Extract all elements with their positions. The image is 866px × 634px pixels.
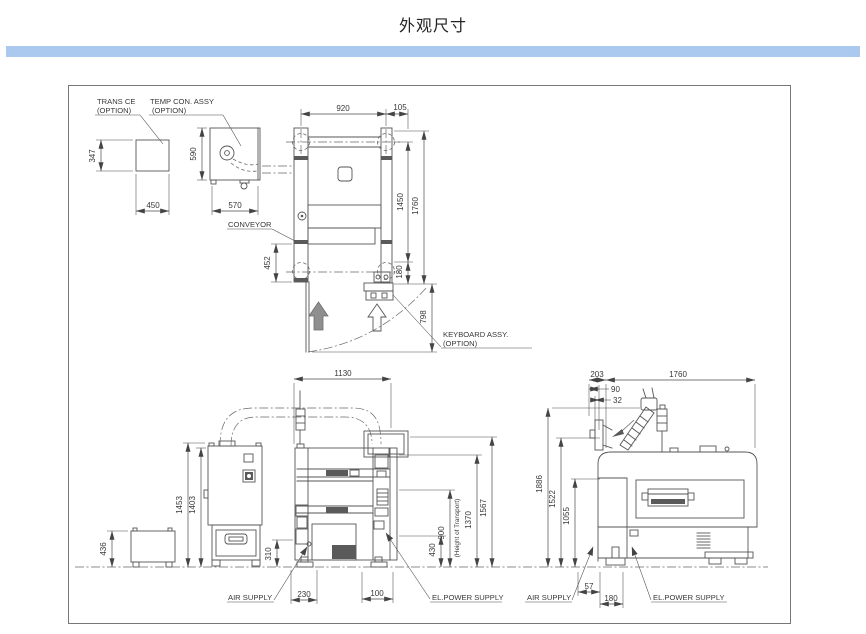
air-supply-label-front: AIR SUPPLY — [228, 593, 272, 602]
small-option-box: 436 — [99, 528, 175, 567]
dim-front-310: 310 — [264, 547, 273, 561]
side-view: 203 1760 90 32 1886 1522 1055 57 — [525, 370, 757, 608]
keyboard-assy-plan — [364, 272, 393, 300]
duct-outer — [220, 408, 381, 446]
dim-front-430: 430 — [428, 543, 437, 557]
dim-front-1370: 1370 — [464, 511, 473, 529]
flow-arrow-filled — [309, 302, 328, 330]
temp-con-label-line2: (OPTION) — [152, 106, 187, 115]
trans-ce-label-line2: (OPTION) — [97, 106, 132, 115]
dim-front-1567: 1567 — [479, 499, 488, 517]
keyboard-label-line2: (OPTION) — [443, 339, 478, 348]
dim-plan-452: 452 — [263, 256, 272, 270]
front-view: 436 1453 — [99, 369, 504, 604]
dim-side-32: 32 — [613, 396, 622, 405]
vent-grille-side — [697, 533, 710, 548]
monitor-front — [364, 431, 408, 457]
dim-side-1886: 1886 — [535, 475, 544, 493]
dim-trans-347: 347 — [88, 149, 97, 163]
dim-side-1055: 1055 — [562, 507, 571, 525]
dim-plan-920: 920 — [336, 104, 350, 113]
dim-side-1522: 1522 — [548, 490, 557, 508]
accent-bar — [6, 46, 860, 57]
dim-plan-180: 180 — [395, 265, 404, 279]
dim-front-1130: 1130 — [334, 369, 352, 378]
flow-arrow-outline — [368, 304, 386, 331]
plan-view: 920 105 1450 180 1760 798 452 CONVEYOR — [227, 103, 532, 352]
dim-side-1760: 1760 — [669, 370, 687, 379]
dim-front-436: 436 — [99, 542, 108, 556]
signal-tower-front — [296, 391, 305, 448]
trans-ce-label-line1: TRANS CE — [97, 97, 135, 106]
plan-center-module — [338, 167, 352, 181]
drawing-border — [69, 86, 791, 624]
monitor-side — [590, 420, 612, 450]
el-power-label-front: EL.POWER SUPPLY — [432, 593, 504, 602]
dim-plan-105: 105 — [393, 103, 407, 112]
technical-drawing: 920 105 1450 180 1760 798 452 CONVEYOR — [68, 85, 791, 624]
dimension-drawing-page: 外观尺寸 — [0, 0, 866, 634]
dim-side-203: 203 — [590, 370, 604, 379]
dim-front-100: 100 — [370, 589, 384, 598]
dim-temp-570: 570 — [228, 201, 242, 210]
dim-front-900: 900 — [437, 526, 446, 540]
dim-side-90: 90 — [611, 385, 620, 394]
temp-con-box: TEMP CON. ASSY (OPTION) 590 570 — [149, 97, 293, 215]
dim-plan-798: 798 — [419, 310, 428, 324]
el-power-label-side: EL.POWER SUPPLY — [653, 593, 725, 602]
drawing-frame: 920 105 1450 180 1760 798 452 CONVEYOR — [68, 85, 791, 624]
duct-inner — [231, 417, 372, 446]
dim-front-1453: 1453 — [175, 496, 184, 514]
air-supply-label-side: AIR SUPPLY — [527, 593, 571, 602]
dim-trans-450: 450 — [146, 201, 160, 210]
dim-front-230: 230 — [297, 590, 311, 599]
dim-side-57: 57 — [585, 582, 594, 591]
feeder-cabinet: 1453 1403 — [175, 441, 262, 567]
dim-side-180: 180 — [604, 594, 618, 603]
page-title: 外观尺寸 — [0, 12, 866, 36]
swing-arc — [308, 287, 427, 352]
signal-tower-side — [657, 405, 667, 452]
conveyor-label: CONVEYOR — [228, 220, 272, 229]
dim-plan-1760: 1760 — [411, 197, 420, 215]
dim-temp-590: 590 — [189, 147, 198, 161]
dim-plan-1450: 1450 — [396, 193, 405, 211]
keyboard-label-line1: KEYBOARD ASSY. — [443, 330, 508, 339]
height-of-transport-label: (Height of Transport) — [454, 499, 461, 558]
dim-front-1403: 1403 — [188, 496, 197, 514]
temp-con-label-line1: TEMP CON. ASSY — [150, 97, 214, 106]
